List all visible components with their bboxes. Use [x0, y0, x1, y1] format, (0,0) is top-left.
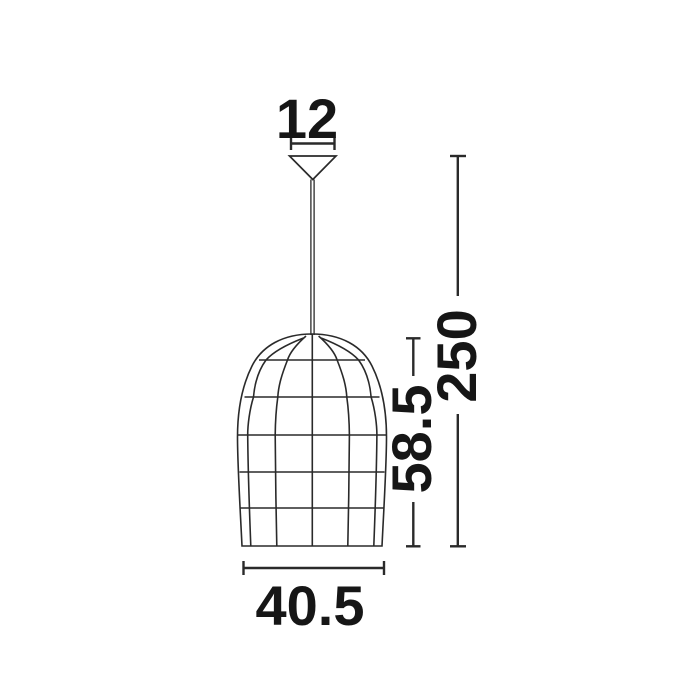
canopy-width-label: 12: [276, 91, 338, 147]
lamp-shade-cage: [238, 334, 387, 546]
shade-width-dimension-line: [244, 561, 385, 575]
shade-width-label: 40.5: [256, 578, 365, 634]
shade-ribs: [248, 335, 377, 547]
dimension-drawing: 12 40.5 58.5 250: [0, 0, 700, 700]
suspension-cord: [311, 180, 314, 336]
ceiling-canopy: [290, 156, 337, 180]
total-height-label: 250: [429, 309, 485, 402]
